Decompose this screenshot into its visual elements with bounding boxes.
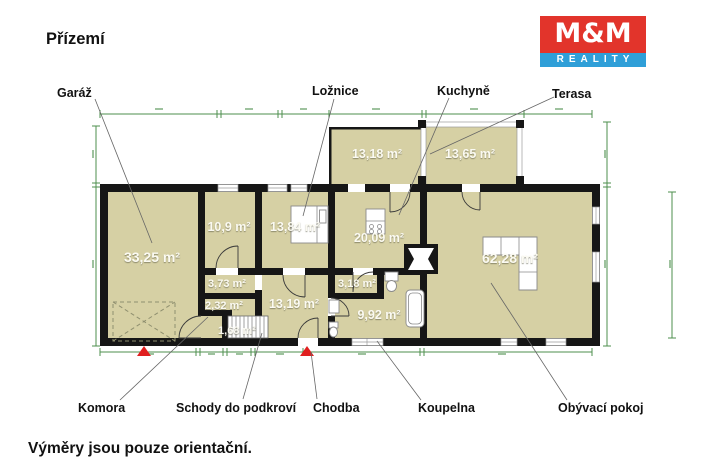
sink bbox=[329, 300, 339, 313]
room-area-wc: 3,18 m² bbox=[338, 278, 376, 290]
callout-terrace: Terasa bbox=[552, 87, 592, 101]
entrance-markers bbox=[137, 346, 314, 356]
page-title: Přízemí bbox=[46, 30, 106, 48]
toilet-tank bbox=[385, 272, 398, 281]
room-area-closet-c: 1,68 m² bbox=[218, 325, 256, 337]
room-area-closet-b: 2,32 m² bbox=[205, 300, 243, 312]
floorplan-page: 33,25 m² 10,9 m² 13,84 m² 13,18 m² 13,65… bbox=[0, 0, 702, 468]
callout-hallway: Chodba bbox=[313, 401, 361, 415]
callout-garage: Garáž bbox=[57, 86, 92, 100]
door-opening bbox=[390, 184, 410, 192]
logo-mm-text: M&M bbox=[540, 16, 646, 53]
door-opening bbox=[348, 184, 365, 192]
callout-bedroom: Ložnice bbox=[312, 84, 359, 98]
floorplan-drawing: 33,25 m² 10,9 m² 13,84 m² 13,18 m² 13,65… bbox=[0, 0, 702, 468]
room-area-bedroom: 13,84 m² bbox=[270, 220, 320, 234]
room-area-small-top: 10,9 m² bbox=[207, 220, 250, 234]
room-area-hallway: 13,19 m² bbox=[269, 297, 319, 311]
callout-living: Obývací pokoj bbox=[558, 401, 643, 415]
room-area-kitchen: 20,09 m² bbox=[354, 231, 404, 245]
callout-stairs: Schody do podkroví bbox=[176, 401, 297, 415]
room-area-living: 62,28 m² bbox=[482, 250, 538, 266]
toilet-2 bbox=[330, 327, 338, 337]
callout-bathroom: Koupelna bbox=[418, 401, 476, 415]
agency-logo: M&M REALITY bbox=[540, 16, 646, 67]
door-opening bbox=[462, 184, 480, 192]
room-area-closet-a: 3,73 m² bbox=[208, 278, 246, 290]
room-area-bathroom: 9,92 m² bbox=[357, 308, 400, 322]
callout-pantry: Komora bbox=[78, 401, 126, 415]
footer-note: Výměry jsou pouze orientační. bbox=[28, 440, 252, 457]
entrance-opening bbox=[298, 338, 318, 346]
room-area-garage: 33,25 m² bbox=[124, 249, 180, 265]
room-area-terrace: 13,65 m² bbox=[445, 147, 495, 161]
entrance-marker bbox=[300, 346, 314, 356]
logo-reality-text: REALITY bbox=[540, 53, 646, 67]
entrance-marker bbox=[137, 346, 151, 356]
room-area-annex: 13,18 m² bbox=[352, 147, 402, 161]
toilet bbox=[387, 281, 397, 292]
callout-kitchen: Kuchyně bbox=[437, 84, 490, 98]
